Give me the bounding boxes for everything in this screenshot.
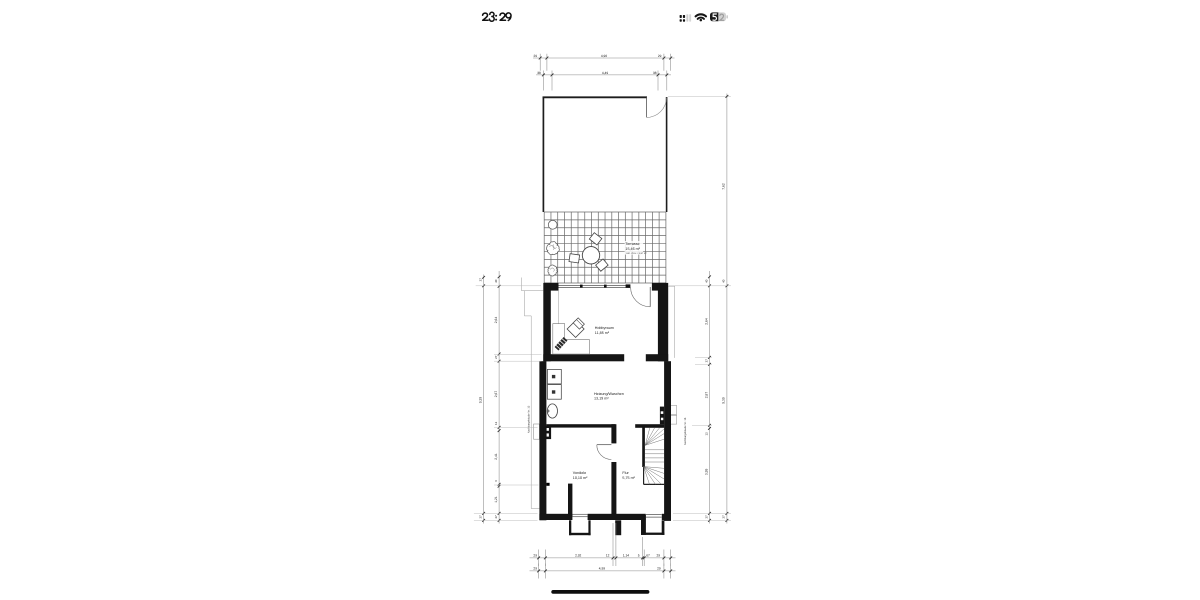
svg-text:12: 12 — [494, 421, 498, 425]
svg-text:29: 29 — [533, 566, 537, 570]
svg-text:12: 12 — [606, 553, 610, 557]
svg-text:40: 40 — [494, 279, 498, 283]
svg-text:27: 27 — [494, 515, 498, 519]
svg-text:2,41: 2,41 — [494, 453, 498, 460]
svg-text:Nachbargebäude Nr. 16: Nachbargebäude Nr. 16 — [684, 417, 687, 445]
svg-text:inkl. 25% = 3,87 m²: inkl. 25% = 3,87 m² — [626, 252, 647, 255]
svg-text:1,21: 1,21 — [494, 496, 498, 503]
svg-text:27: 27 — [704, 359, 708, 363]
svg-text:67: 67 — [646, 553, 650, 557]
svg-text:2,92: 2,92 — [575, 553, 581, 557]
svg-text:1,14: 1,14 — [623, 553, 629, 557]
svg-text:10,10 m²: 10,10 m² — [573, 476, 588, 480]
svg-text:3,99: 3,99 — [704, 469, 708, 476]
svg-text:38: 38 — [537, 71, 541, 75]
svg-text:27: 27 — [478, 278, 482, 282]
svg-text:15,46 m²: 15,46 m² — [625, 247, 640, 251]
svg-text:5: 5 — [638, 553, 640, 557]
svg-text:Heizung/Waschen: Heizung/Waschen — [594, 392, 624, 396]
svg-text:5,75 m²: 5,75 m² — [622, 476, 635, 480]
svg-text:Hobbyraum: Hobbyraum — [595, 326, 614, 330]
svg-text:38: 38 — [653, 71, 657, 75]
svg-text:29: 29 — [534, 54, 538, 58]
svg-text:12: 12 — [704, 432, 708, 436]
svg-text:7,62: 7,62 — [722, 183, 726, 190]
svg-text:27: 27 — [494, 355, 498, 359]
svg-text:40: 40 — [704, 279, 708, 283]
svg-text:2,64: 2,64 — [704, 318, 708, 325]
svg-text:Vordiele: Vordiele — [573, 471, 586, 475]
svg-text:2,67: 2,67 — [494, 391, 498, 398]
svg-text:4,49: 4,49 — [602, 71, 608, 75]
svg-text:9,39: 9,39 — [478, 397, 482, 404]
svg-text:11,85 m²: 11,85 m² — [595, 331, 610, 335]
svg-text:9,39: 9,39 — [722, 397, 726, 404]
svg-text:27: 27 — [722, 515, 726, 519]
svg-text:13,19 m²: 13,19 m² — [594, 397, 609, 401]
svg-text:4,90: 4,90 — [601, 54, 607, 58]
svg-text:27: 27 — [478, 515, 482, 519]
svg-text:27: 27 — [704, 515, 708, 519]
svg-text:2,87: 2,87 — [704, 392, 708, 399]
svg-text:29: 29 — [657, 553, 661, 557]
svg-text:Terrasse: Terrasse — [625, 242, 639, 246]
svg-text:29: 29 — [657, 566, 661, 570]
svg-text:29: 29 — [658, 54, 662, 58]
svg-text:4,99: 4,99 — [599, 566, 605, 570]
svg-text:40: 40 — [722, 279, 726, 283]
svg-text:2,64: 2,64 — [494, 317, 498, 324]
svg-text:Flur: Flur — [622, 471, 629, 475]
svg-text:29: 29 — [533, 553, 537, 557]
svg-text:Nachbargebäude Nr. 12: Nachbargebäude Nr. 12 — [527, 405, 530, 433]
